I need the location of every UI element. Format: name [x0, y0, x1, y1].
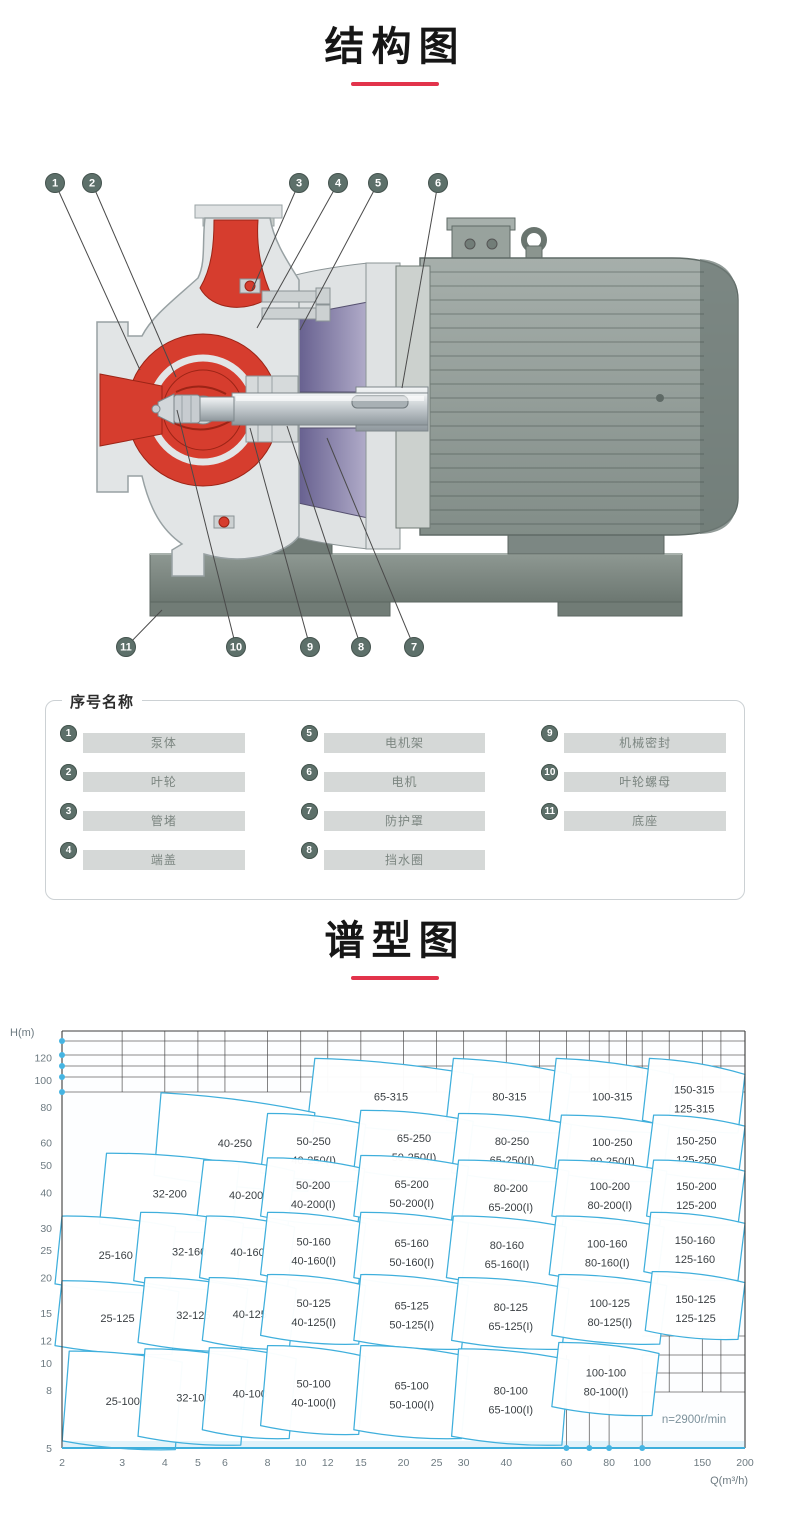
model-cell-label: 65-100 — [395, 1381, 429, 1393]
x-tick-label: 100 — [633, 1457, 651, 1469]
x-tick-label: 30 — [458, 1457, 470, 1469]
model-cell-label: 50-160(I) — [389, 1257, 434, 1269]
model-cell-label: 150-200 — [676, 1181, 716, 1193]
callout-number: 5 — [375, 178, 381, 190]
x-tick-label: 5 — [195, 1457, 201, 1469]
legend-column: 9机械密封10叶轮螺母11底座 — [541, 727, 726, 883]
model-cell-label: 40-160(I) — [291, 1255, 336, 1267]
axis-dot — [606, 1445, 612, 1451]
y-tick-label: 25 — [40, 1245, 52, 1257]
model-cell-label: 40-250 — [218, 1138, 252, 1150]
model-cells: 65-31580-315100-315150-315125-31540-2505… — [55, 1058, 745, 1449]
part-name-bar: 机械密封 — [564, 733, 726, 753]
part-name-bar: 电机 — [324, 772, 486, 792]
model-cell-label: 32-200 — [153, 1188, 187, 1200]
part-name-bar: 端盖 — [83, 850, 245, 870]
model-cell-label: 150-315 — [674, 1085, 714, 1097]
y-tick-label: 120 — [34, 1052, 52, 1064]
model-cell-label: 32-160 — [172, 1247, 206, 1259]
model-cell-label: 65-250 — [397, 1133, 431, 1145]
model-cell-label: 65-125(I) — [488, 1321, 533, 1333]
model-cell-label: 50-125 — [297, 1298, 331, 1310]
x-tick-label: 200 — [736, 1457, 754, 1469]
model-cell-label: 100-315 — [592, 1092, 632, 1104]
model-cell-label: 65-160(I) — [485, 1259, 530, 1271]
model-cell-label: 50-160 — [297, 1236, 331, 1248]
callout-number: 7 — [411, 642, 417, 654]
model-cell-label: 40-100(I) — [291, 1398, 336, 1410]
legend-item: 7防护罩 — [301, 805, 486, 831]
model-cell-label: 40-200 — [229, 1190, 263, 1202]
x-tick-label: 25 — [431, 1457, 443, 1469]
part-name-bar: 叶轮螺母 — [564, 772, 726, 792]
model-cell-label: 80-100 — [494, 1386, 528, 1398]
model-cell-label: 100-100 — [586, 1368, 626, 1380]
model-cell-label: 65-100(I) — [488, 1405, 533, 1417]
callout-number: 3 — [296, 178, 302, 190]
impeller-nut — [174, 395, 200, 423]
part-number-badge: 8 — [301, 842, 318, 859]
axis-dot — [586, 1445, 592, 1451]
model-cell-label: 125-315 — [674, 1104, 714, 1116]
callout-number: 1 — [52, 178, 58, 190]
x-tick-label: 150 — [694, 1457, 712, 1469]
model-cell-label: 40-160 — [230, 1247, 264, 1259]
x-tick-label: 60 — [561, 1457, 573, 1469]
legend-columns: 1泵体2叶轮3管堵4端盖5电机架6电机7防护罩8挡水圈9机械密封10叶轮螺母11… — [60, 727, 726, 883]
axis-dot — [563, 1445, 569, 1451]
x-tick-label: 20 — [398, 1457, 410, 1469]
model-cell-label: 80-200 — [494, 1183, 528, 1195]
part-name-bar: 叶轮 — [83, 772, 245, 792]
part-number-badge: 5 — [301, 725, 318, 742]
spectrum-section-header: 谱型图 — [0, 908, 790, 980]
part-number-badge: 2 — [60, 764, 77, 781]
x-tick-label: 80 — [603, 1457, 615, 1469]
discharge-flange — [195, 205, 282, 218]
model-cell-label: 65-160 — [395, 1238, 429, 1250]
x-tick-label: 3 — [119, 1457, 125, 1469]
model-cell-label: 80-200(I) — [587, 1200, 632, 1212]
model-cell-label: 150-160 — [675, 1235, 715, 1247]
callout-number: 2 — [89, 178, 95, 190]
model-cell-label: 65-200 — [395, 1179, 429, 1191]
x-tick-label: 40 — [500, 1457, 512, 1469]
part-number-badge: 9 — [541, 725, 558, 742]
model-cell-label: 25-100 — [106, 1396, 140, 1408]
axis-dot — [59, 1089, 65, 1095]
part-number-badge: 3 — [60, 803, 77, 820]
callout-number: 4 — [335, 178, 342, 190]
callout-number: 10 — [230, 642, 242, 654]
model-cell-label: 40-125(I) — [291, 1317, 336, 1329]
model-cell-label: 80-100(I) — [584, 1387, 629, 1399]
x-tick-label: 15 — [355, 1457, 367, 1469]
y-tick-label: 8 — [46, 1385, 52, 1397]
x-axis-label: Q(m³/h) — [710, 1475, 748, 1487]
y-tick-label: 100 — [34, 1075, 52, 1087]
legend-item: 11底座 — [541, 805, 726, 831]
y-tick-label: 60 — [40, 1138, 52, 1150]
y-tick-label: 12 — [40, 1335, 52, 1347]
part-name-bar: 挡水圈 — [324, 850, 486, 870]
y-axis-label: H(m) — [10, 1027, 34, 1039]
model-cell-label: 50-100 — [297, 1379, 331, 1391]
axis-dot — [59, 1074, 65, 1080]
model-cell-label: 80-125 — [494, 1302, 528, 1314]
callout-number: 8 — [358, 642, 364, 654]
model-cell-label: 25-160 — [99, 1250, 133, 1262]
stud-bolt — [262, 308, 318, 319]
model-cell-label: 125-125 — [675, 1313, 715, 1325]
legend-item: 8挡水圈 — [301, 844, 486, 870]
axis-dot — [639, 1445, 645, 1451]
x-tick-label: 6 — [222, 1457, 228, 1469]
structure-title: 结构图 — [0, 14, 790, 72]
part-name-bar: 底座 — [564, 811, 726, 831]
legend-item: 5电机架 — [301, 727, 486, 753]
model-cell-label: 100-125 — [590, 1298, 630, 1310]
model-cell-label: 125-160 — [675, 1254, 715, 1266]
model-cell-label: 25-125 — [100, 1313, 134, 1325]
y-tick-label: 50 — [40, 1160, 52, 1172]
pump-structure-illustration: 1234567891011 — [0, 130, 790, 690]
model-cell-label: 50-200 — [296, 1180, 330, 1192]
y-tick-label: 5 — [46, 1443, 52, 1455]
legend-item: 3管堵 — [60, 805, 245, 831]
x-tick-label: 10 — [295, 1457, 307, 1469]
part-number-badge: 11 — [541, 803, 558, 820]
callout-number: 11 — [120, 642, 132, 654]
pump-selection-chart: 65-31580-315100-315150-315125-31540-2505… — [0, 1020, 790, 1520]
legend-column: 5电机架6电机7防护罩8挡水圈 — [301, 727, 486, 883]
model-cell-label: 50-250 — [297, 1136, 331, 1148]
model-cell-label: 100-160 — [587, 1238, 627, 1250]
x-tick-label: 12 — [322, 1457, 334, 1469]
legend-item: 6电机 — [301, 766, 486, 792]
part-number-badge: 6 — [301, 764, 318, 781]
spectrum-title: 谱型图 — [0, 908, 790, 966]
model-cell-label: 65-200(I) — [488, 1202, 533, 1214]
x-tick-label: 4 — [162, 1457, 168, 1469]
model-cell-label: 40-100 — [233, 1389, 267, 1401]
legend-column: 1泵体2叶轮3管堵4端盖 — [60, 727, 245, 883]
y-tick-label: 15 — [40, 1308, 52, 1320]
model-cell-label: 80-125(I) — [587, 1317, 632, 1329]
motor — [420, 218, 738, 535]
x-tick-label: 2 — [59, 1457, 65, 1469]
model-cell-label: 80-160 — [490, 1240, 524, 1252]
part-name-bar: 防护罩 — [324, 811, 486, 831]
structure-title-underline — [351, 82, 439, 86]
part-name-bar: 泵体 — [83, 733, 245, 753]
model-cell-label: 40-125 — [233, 1309, 267, 1321]
speed-annotation: n=2900r/min — [662, 1414, 726, 1426]
model-cell-label: 50-100(I) — [389, 1400, 434, 1412]
part-name-bar: 管堵 — [83, 811, 245, 831]
legend-header: 序号名称 — [62, 691, 142, 712]
y-tick-label: 80 — [40, 1102, 52, 1114]
model-cell-label: 50-125(I) — [389, 1319, 434, 1331]
y-tick-label: 30 — [40, 1223, 52, 1235]
model-cell-label: 80-250 — [495, 1136, 529, 1148]
part-name-bar: 电机架 — [324, 733, 486, 753]
legend-item: 4端盖 — [60, 844, 245, 870]
x-tick-label: 8 — [265, 1457, 271, 1469]
model-cell-label: 80-315 — [492, 1092, 526, 1104]
y-tick-label: 40 — [40, 1187, 52, 1199]
pump-base — [150, 554, 682, 616]
spectrum-title-underline — [351, 976, 439, 980]
part-number-badge: 1 — [60, 725, 77, 742]
terminal-box — [452, 226, 510, 262]
legend-item: 1泵体 — [60, 727, 245, 753]
model-cell-label: 150-125 — [675, 1294, 715, 1306]
y-tick-label: 10 — [40, 1358, 52, 1370]
model-cell-label: 125-200 — [676, 1200, 716, 1212]
part-number-badge: 10 — [541, 764, 558, 781]
chart-root: 65-31580-315100-315150-315125-31540-2505… — [10, 1027, 754, 1487]
axis-dot — [59, 1052, 65, 1058]
legend-item: 10叶轮螺母 — [541, 766, 726, 792]
part-number-badge: 7 — [301, 803, 318, 820]
callout-number: 9 — [307, 642, 313, 654]
axis-dot — [59, 1038, 65, 1044]
model-cell-label: 65-125 — [395, 1300, 429, 1312]
y-tick-label: 20 — [40, 1273, 52, 1285]
model-cell-label: 40-200(I) — [291, 1199, 336, 1211]
stud-bolt — [262, 291, 318, 302]
model-cell-label: 65-315 — [374, 1092, 408, 1104]
part-number-badge: 4 — [60, 842, 77, 859]
model-cell-label: 50-200(I) — [389, 1198, 434, 1210]
drain-plug — [219, 517, 229, 527]
structure-section-header: 结构图 — [0, 14, 790, 86]
axis-dot — [59, 1063, 65, 1069]
page: 结构图 — [0, 0, 790, 1520]
parts-legend-panel: 序号名称 1泵体2叶轮3管堵4端盖5电机架6电机7防护罩8挡水圈9机械密封10叶… — [45, 700, 745, 900]
legend-item: 9机械密封 — [541, 727, 726, 753]
model-cell-label: 150-250 — [676, 1136, 716, 1148]
model-cell-label: 80-160(I) — [585, 1257, 630, 1269]
model-cell-label: 100-200 — [590, 1181, 630, 1193]
callout-number: 6 — [435, 178, 441, 190]
legend-item: 2叶轮 — [60, 766, 245, 792]
model-cell-label: 100-250 — [592, 1137, 632, 1149]
